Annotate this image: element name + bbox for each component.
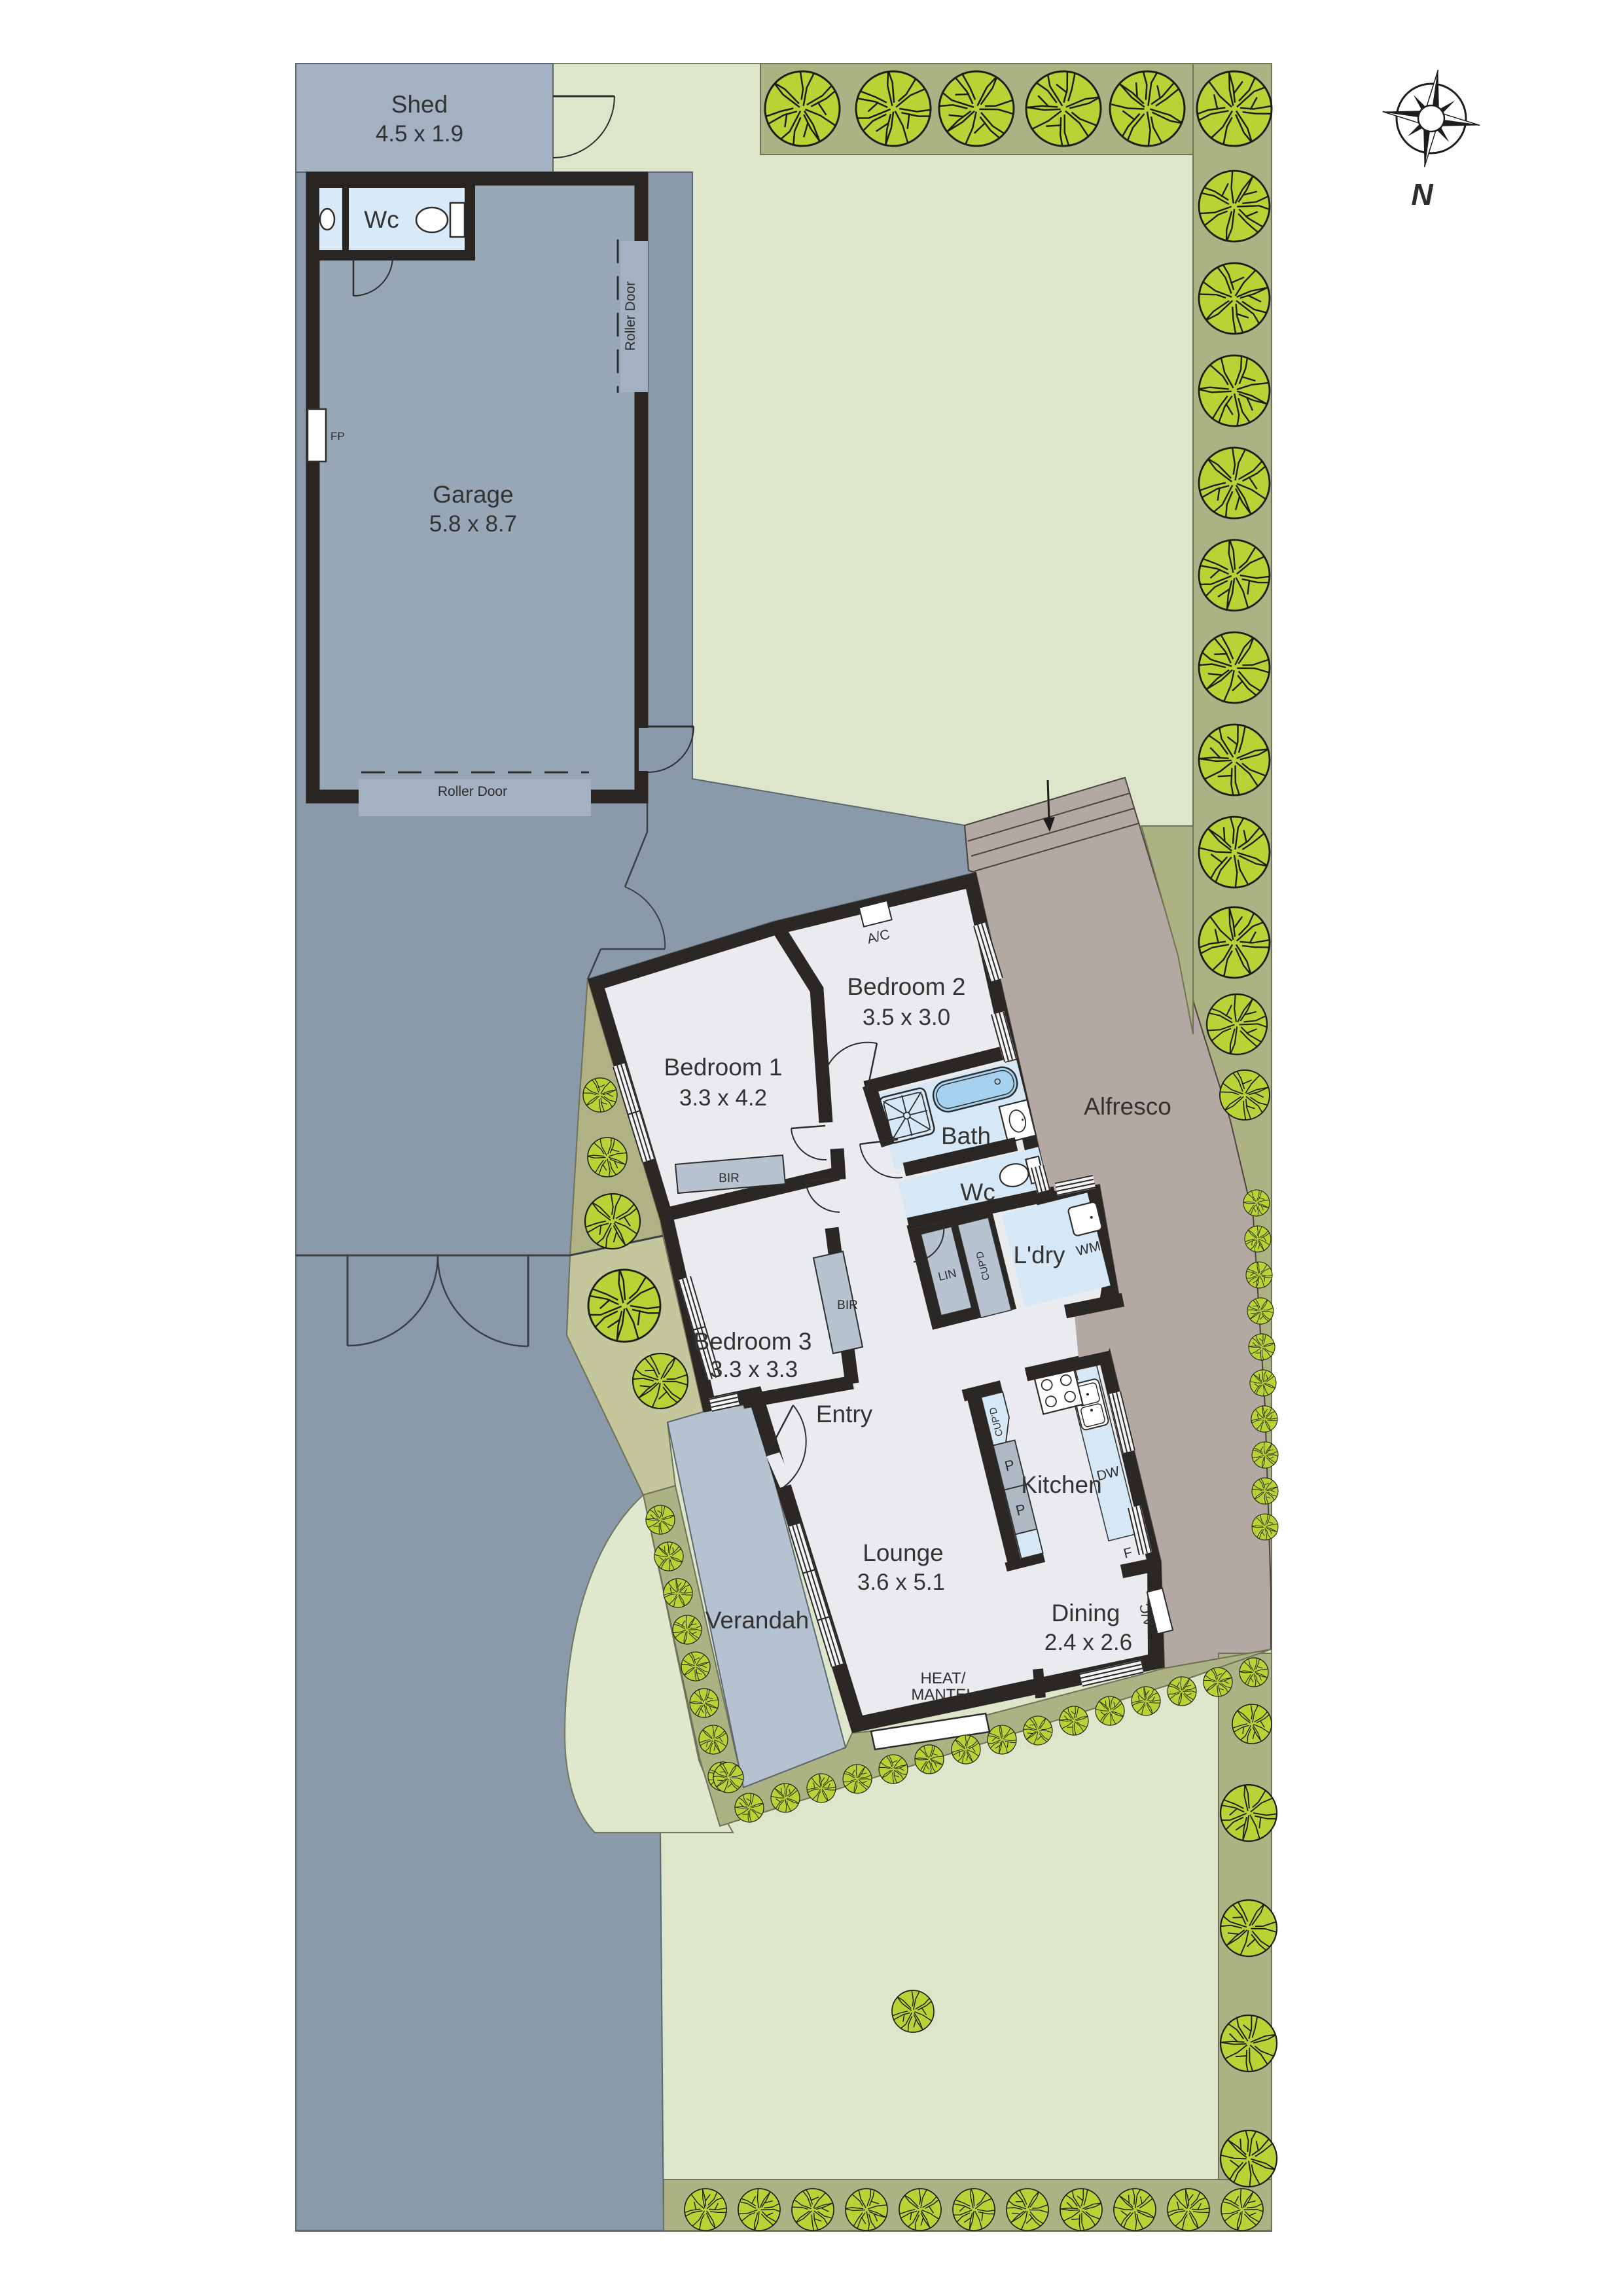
svg-text:Alfresco: Alfresco [1084, 1093, 1171, 1120]
svg-text:L'dry: L'dry [1013, 1242, 1065, 1268]
svg-text:Shed: Shed [391, 91, 448, 118]
svg-text:Roller Door: Roller Door [438, 784, 507, 799]
svg-text:Dining: Dining [1052, 1600, 1120, 1626]
svg-text:Kitchen: Kitchen [1021, 1471, 1101, 1498]
svg-text:Bedroom 3: Bedroom 3 [694, 1328, 812, 1355]
svg-text:Wc: Wc [364, 206, 399, 233]
svg-text:4.5 x 1.9: 4.5 x 1.9 [376, 121, 463, 147]
svg-text:HEAT/: HEAT/ [921, 1670, 966, 1687]
svg-text:BIR: BIR [719, 1172, 740, 1185]
svg-text:3.3 x 3.3: 3.3 x 3.3 [710, 1357, 798, 1382]
svg-text:Verandah: Verandah [705, 1607, 809, 1634]
svg-text:Bath: Bath [941, 1122, 991, 1149]
svg-text:BIR: BIR [837, 1299, 858, 1312]
svg-text:5.8 x 8.7: 5.8 x 8.7 [429, 511, 517, 537]
svg-text:FP: FP [330, 430, 345, 442]
svg-text:Bedroom 2: Bedroom 2 [847, 973, 966, 1000]
svg-text:Garage: Garage [433, 481, 513, 508]
svg-text:Bedroom 1: Bedroom 1 [664, 1054, 783, 1081]
svg-text:2.4 x 2.6: 2.4 x 2.6 [1044, 1630, 1132, 1655]
svg-text:3.6 x 5.1: 3.6 x 5.1 [857, 1570, 945, 1595]
svg-text:Wc: Wc [960, 1179, 995, 1206]
svg-text:3.5 x 3.0: 3.5 x 3.0 [863, 1005, 950, 1030]
svg-text:Entry: Entry [816, 1401, 873, 1427]
svg-text:MANTEL: MANTEL [911, 1686, 974, 1704]
svg-text:N: N [1411, 177, 1433, 211]
svg-text:3.3 x 4.2: 3.3 x 4.2 [679, 1085, 767, 1111]
svg-text:Lounge: Lounge [863, 1539, 943, 1566]
svg-text:Roller Door: Roller Door [623, 281, 638, 351]
